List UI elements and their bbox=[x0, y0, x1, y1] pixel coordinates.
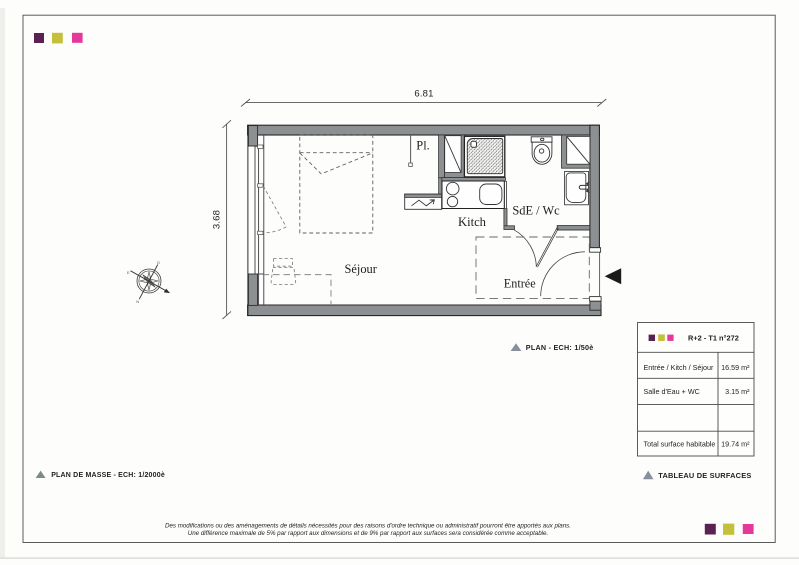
svg-text:Une différence maximale de 5%: Une différence maximale de 5% par rappor… bbox=[188, 530, 548, 537]
svg-text:PLAN - ECH: 1/50è: PLAN - ECH: 1/50è bbox=[526, 343, 594, 352]
svg-text:TABLEAU DE SURFACES: TABLEAU DE SURFACES bbox=[658, 471, 751, 480]
svg-text:PLAN DE MASSE - ECH: 1/2000è: PLAN DE MASSE - ECH: 1/2000è bbox=[51, 472, 165, 479]
svg-text:16.59 m²: 16.59 m² bbox=[721, 363, 750, 372]
svg-text:Salle d'Eau + WC: Salle d'Eau + WC bbox=[644, 387, 700, 396]
svg-text:N: N bbox=[136, 299, 139, 304]
svg-text:Entrée / Kitch / Séjour: Entrée / Kitch / Séjour bbox=[644, 363, 715, 372]
svg-text:6.81: 6.81 bbox=[414, 88, 433, 99]
svg-text:Kitch: Kitch bbox=[458, 215, 487, 229]
svg-text:3.68: 3.68 bbox=[212, 210, 223, 229]
svg-text:O: O bbox=[157, 260, 160, 265]
svg-text:Pl.: Pl. bbox=[416, 138, 429, 152]
svg-text:R+2 - T1 n°272: R+2 - T1 n°272 bbox=[688, 334, 739, 343]
svg-text:Entrée: Entrée bbox=[504, 276, 536, 290]
svg-text:E: E bbox=[127, 270, 130, 275]
svg-text:3.15 m²: 3.15 m² bbox=[725, 387, 750, 396]
svg-text:19.74 m²: 19.74 m² bbox=[721, 440, 750, 449]
svg-text:Séjour: Séjour bbox=[345, 262, 378, 276]
svg-text:Des modifications ou des aména: Des modifications ou des aménagements de… bbox=[165, 523, 571, 530]
svg-text:Total surface habitable: Total surface habitable bbox=[644, 440, 716, 449]
svg-text:SdE / Wc: SdE / Wc bbox=[512, 204, 560, 218]
